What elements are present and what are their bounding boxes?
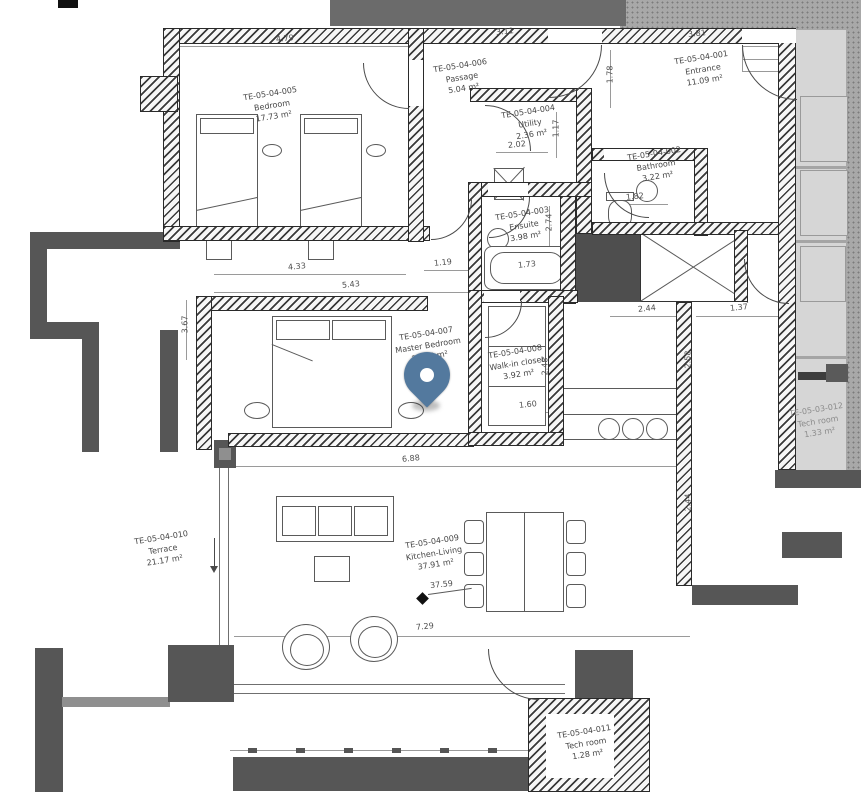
pillow: [276, 320, 330, 340]
stool: [262, 144, 282, 157]
dim-label: 2.44: [683, 494, 692, 512]
parapet: [160, 330, 178, 452]
bottom-parapet: [233, 757, 533, 791]
balustrade-post: [488, 748, 497, 753]
dim-label: 2.44: [638, 303, 657, 314]
lounge-chair-seat: [290, 634, 324, 666]
dim-line: [696, 316, 788, 317]
dim-line: [180, 46, 408, 47]
slope-arrow-head: [210, 566, 218, 573]
parapet-edge-line: [230, 750, 532, 751]
chair: [566, 584, 586, 608]
wardrobe-shelf: [488, 386, 546, 387]
adjacent-bed: [800, 96, 848, 162]
dim-label: 1.78: [605, 66, 614, 84]
dim-line: [496, 152, 548, 153]
sofa-cushion: [318, 506, 352, 536]
location-pin-hole: [420, 368, 434, 382]
dim-label: 4.79: [276, 33, 295, 44]
balustrade-post: [248, 748, 257, 753]
pillow: [304, 118, 358, 134]
top-slab: [330, 0, 626, 26]
parapet-line: [62, 697, 170, 707]
coffee-table: [314, 556, 350, 582]
balustrade-post: [344, 748, 353, 753]
slope-arrow-line: [214, 538, 215, 568]
chair: [566, 552, 586, 576]
door-opening: [548, 29, 602, 43]
chair: [566, 520, 586, 544]
dining-table: [486, 512, 564, 612]
nightstand: [308, 240, 334, 260]
bar-stool: [622, 418, 644, 440]
dim-label: 1.82: [626, 191, 645, 202]
adjacent-bed: [800, 170, 848, 236]
level-marker-symbol: [416, 592, 429, 605]
parapet: [775, 470, 861, 488]
dim-label: 4.33: [288, 261, 307, 272]
wall-entrance-south: [592, 222, 796, 235]
bar-stool: [598, 418, 620, 440]
corner-pier: [168, 645, 234, 702]
dim-label: 1.73: [518, 259, 537, 270]
parapet: [82, 322, 99, 452]
dim-label: 3.11: [496, 26, 515, 37]
adjacent-wall: [796, 166, 846, 169]
wall-bedroom-south: [163, 226, 430, 241]
wall-walkin-south: [468, 432, 564, 446]
room-label-terrace: TE-05-04-010 Terrace 21.17 m²: [113, 525, 213, 574]
nightstand: [244, 402, 270, 419]
dim-line: [424, 270, 470, 271]
elevator-shaft: [576, 232, 640, 302]
dim-label: 3.67: [180, 316, 189, 334]
adjacent-wall: [796, 240, 846, 243]
door-opening: [484, 291, 520, 302]
level-label: 37.59: [430, 579, 454, 590]
dim-label: 7.29: [416, 621, 435, 632]
floor-plan: 4.79 3.11 3.81 1.78 2.02 1.17 1.82 2.74 …: [0, 0, 861, 800]
nightstand: [206, 240, 232, 260]
door-opening: [488, 183, 528, 196]
counter-line: [558, 414, 692, 415]
room-label-entrance: TE-05-04-001 Entrance 11.09 m²: [653, 45, 753, 94]
dim-label: 5.43: [342, 279, 361, 290]
pier: [782, 532, 842, 558]
dim-line: [234, 466, 690, 467]
parapet: [30, 232, 180, 249]
dim-line: [214, 274, 406, 275]
adjacent-furniture: [800, 246, 846, 302]
dim-label: 6.88: [402, 453, 421, 464]
wall-utility-east: [576, 88, 592, 234]
dim-line: [214, 292, 480, 293]
door-opening: [742, 29, 796, 43]
stool: [366, 144, 386, 157]
adjacent-wall: [796, 356, 846, 359]
column: [140, 76, 178, 112]
pier: [575, 650, 633, 700]
sofa-cushion: [354, 506, 388, 536]
wall-master-south: [228, 433, 474, 447]
wall-ensuite-north: [468, 182, 592, 197]
top-right-slab: [620, 0, 861, 30]
parapet: [692, 585, 798, 605]
window-mullion: [219, 448, 231, 460]
balustrade-post: [440, 748, 449, 753]
sofa-cushion: [282, 506, 316, 536]
wall-living-east: [676, 302, 692, 586]
wall-stub: [58, 0, 78, 8]
dim-label: 1.19: [434, 257, 453, 268]
dim-label: 1.37: [730, 302, 749, 313]
parapet: [35, 648, 63, 792]
lounge-chair-seat: [358, 626, 392, 658]
dim-label: 1.60: [519, 399, 538, 410]
wall-bedroom-west: [163, 28, 180, 242]
balustrade-post: [392, 748, 401, 753]
dim-label: 2.58: [683, 351, 692, 369]
equipment: [826, 364, 848, 382]
balustrade-post: [296, 748, 305, 753]
dim-label: 3.81: [688, 28, 707, 39]
wall-master-west: [196, 296, 212, 450]
wall-master-north: [196, 296, 428, 311]
table-centerline: [524, 512, 525, 612]
bar-stool: [646, 418, 668, 440]
